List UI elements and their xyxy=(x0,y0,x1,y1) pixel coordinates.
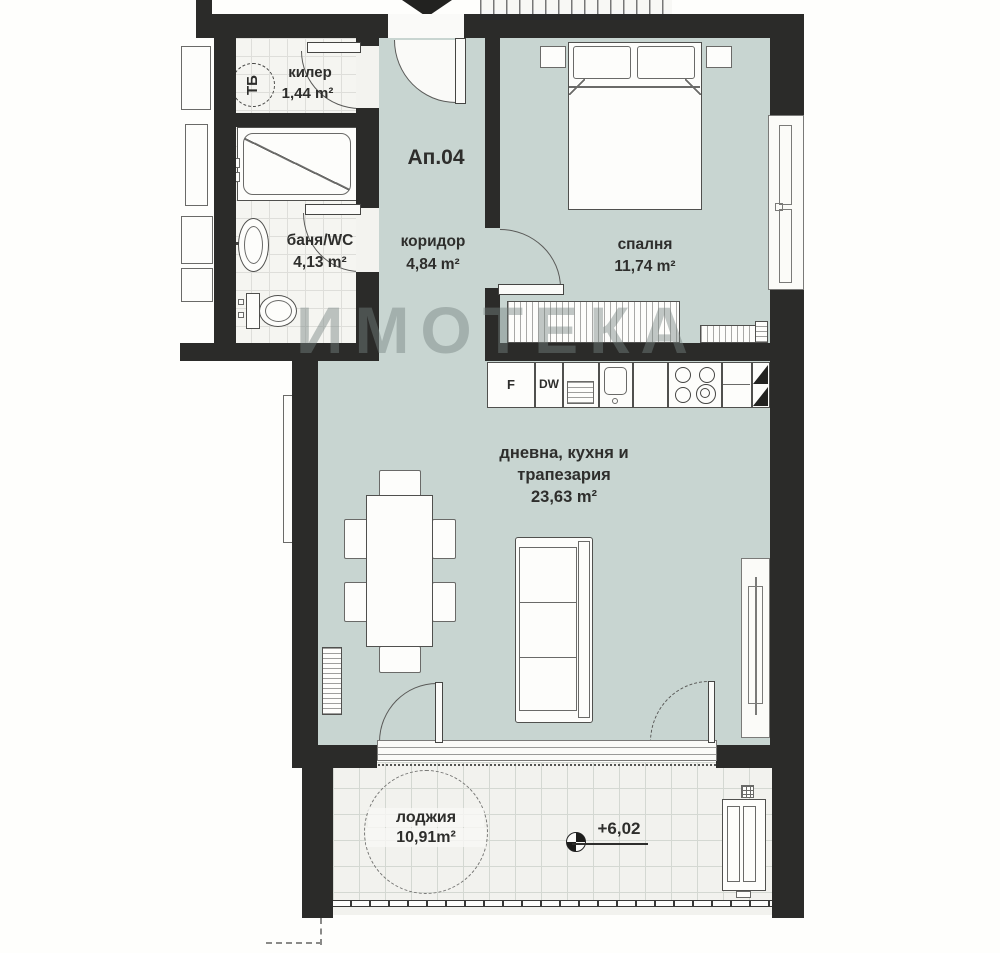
closet-area: 1,44 m² xyxy=(250,85,365,103)
burner xyxy=(675,387,691,403)
loggia-name: лоджия xyxy=(368,808,484,827)
corridor-name: коридор xyxy=(383,233,483,252)
loggia-threshold-dots xyxy=(335,764,772,766)
loggia-floor-edge xyxy=(333,906,772,915)
toilet-bowl xyxy=(259,295,297,327)
wall-living-left xyxy=(292,361,318,763)
chair-bottom xyxy=(379,646,421,673)
neighbor-fragment xyxy=(181,46,211,110)
dining-table xyxy=(366,495,433,647)
burner-double xyxy=(696,384,716,404)
bedroom-window xyxy=(768,115,804,290)
bath-name: баня/WC xyxy=(268,232,372,251)
loggia-ac-unit xyxy=(722,799,766,891)
wardrobe xyxy=(507,301,680,343)
wall-loggia-left xyxy=(302,748,333,918)
bath-door-leaf xyxy=(305,204,361,215)
wall-loggia-right xyxy=(772,748,804,918)
stove xyxy=(668,362,722,408)
neighbor-fragment xyxy=(185,124,208,206)
living-window-radiator xyxy=(748,586,763,704)
chair-left-2 xyxy=(344,582,368,622)
wall-right-column xyxy=(770,556,804,768)
wall-corridor-bedroom-upper xyxy=(485,38,500,228)
wall-bath-left xyxy=(214,38,236,361)
living-name-line2: трапезария xyxy=(478,466,650,486)
elevation-marker-icon xyxy=(566,832,586,852)
wall-closet-bath-divider xyxy=(214,113,379,127)
corridor-area: 4,84 m² xyxy=(383,256,483,275)
wall-bath-bottom xyxy=(180,343,379,361)
bedroom-vent xyxy=(755,321,768,343)
burner xyxy=(699,367,715,383)
nightstand-left xyxy=(540,46,566,68)
dish-rack xyxy=(563,362,599,408)
bedroom-door-opening xyxy=(485,228,500,288)
loggia-door1-leaf xyxy=(435,682,443,743)
loggia-drain xyxy=(741,785,754,798)
chair-right-2 xyxy=(432,582,456,622)
living-area: 23,63 m² xyxy=(478,488,650,508)
bed xyxy=(568,42,702,210)
sofa-back xyxy=(578,541,590,718)
loggia-area: 10,91m² xyxy=(366,828,486,847)
nightstand-right xyxy=(706,46,732,68)
passage-floor xyxy=(377,343,485,363)
floor-plan: ТБ килер 1,44 m² баня/WC 4,13 m² Ап.04 к… xyxy=(0,0,1000,953)
living-name-line1: дневна, кухня и xyxy=(478,444,650,464)
entrance-door-leaf xyxy=(455,38,466,104)
wall-top-a xyxy=(196,14,388,38)
bedroom-name: спалня xyxy=(598,236,692,255)
living-radiator xyxy=(322,647,342,715)
outline-dashed-vertical xyxy=(320,918,322,945)
elevation-value: +6,02 xyxy=(588,819,650,839)
kitchen-corner-unit xyxy=(752,362,770,408)
elevation-underline xyxy=(572,843,648,845)
closet-door-leaf xyxy=(307,42,361,53)
outline-dashed-horizontal xyxy=(266,942,322,944)
chair-left-1 xyxy=(344,519,368,559)
pillow-left xyxy=(573,46,631,79)
sofa-seat xyxy=(519,547,577,711)
loggia-railing xyxy=(333,900,772,907)
pillow-right xyxy=(637,46,695,79)
living-window xyxy=(741,558,770,738)
bedroom-door-leaf xyxy=(498,284,564,295)
loggia-glazing-band xyxy=(377,740,717,761)
chair-top xyxy=(379,470,421,497)
burner xyxy=(675,367,691,383)
wall-kitchen-top xyxy=(485,343,804,361)
fridge-label: F xyxy=(487,377,535,393)
dishwasher-label: DW xyxy=(533,377,565,391)
closet-name: килер xyxy=(255,64,365,82)
wall-corridor-bedroom-lower xyxy=(485,288,500,343)
neighbor-fragment xyxy=(181,268,213,302)
chair-right-1 xyxy=(432,519,456,559)
toilet-tank xyxy=(246,293,260,329)
sofa xyxy=(515,537,593,723)
wall-top-b xyxy=(464,14,804,38)
loggia-ac-foot xyxy=(736,891,751,898)
kitchen-cabinet xyxy=(722,362,752,408)
entrance-opening xyxy=(388,14,464,38)
wall-right-mid xyxy=(770,288,804,556)
bath-sink xyxy=(238,218,269,272)
toilet-button2 xyxy=(238,312,244,318)
neighbor-fragment xyxy=(181,216,213,264)
bedroom-area: 11,74 m² xyxy=(594,258,696,277)
apartment-number: Ап.04 xyxy=(390,145,482,170)
kitchen-sink xyxy=(599,362,633,408)
bath-area: 4,13 m² xyxy=(268,254,372,273)
toilet-button xyxy=(238,299,244,305)
kitchen-counter-blank xyxy=(633,362,668,408)
loggia-door2-leaf xyxy=(708,681,715,743)
bathtub xyxy=(237,127,357,201)
wall-right-top xyxy=(770,14,804,117)
